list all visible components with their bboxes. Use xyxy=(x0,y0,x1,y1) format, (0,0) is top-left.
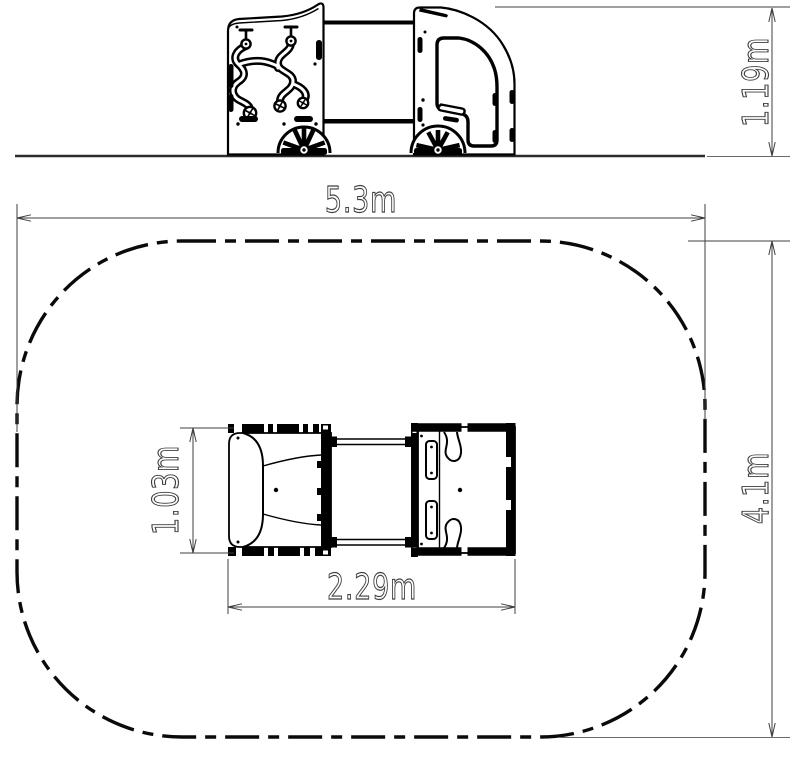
dim-safety-zone-length: 5.3m xyxy=(17,178,705,432)
dim-equipment-width: 1.03m xyxy=(144,428,234,553)
equipment-height-label: 1.19m xyxy=(734,37,777,127)
equipment-length-label: 2.29m xyxy=(327,565,417,608)
drawing-sheet: 5.3m 1.19m 4.1m 2.29m xyxy=(0,0,802,768)
safety-zone-width-label: 4.1m xyxy=(734,452,777,524)
dimensions: 5.3m 1.19m 4.1m 2.29m xyxy=(17,7,790,738)
connecting-rails-plan xyxy=(331,437,411,548)
activity-plan-front-wall xyxy=(506,423,516,556)
plan-view xyxy=(17,241,705,737)
cab-plan-front-wall xyxy=(321,424,331,556)
valve-wheel-icon xyxy=(298,98,308,108)
valve-wheel-icon xyxy=(274,100,285,111)
dim-safety-zone-width: 4.1m xyxy=(558,241,790,738)
technical-drawing-canvas: 5.3m 1.19m 4.1m 2.29m xyxy=(0,0,802,768)
safety-zone-length-label: 5.3m xyxy=(325,178,397,221)
activity-section-plan xyxy=(411,423,516,557)
safety-zone-boundary xyxy=(17,241,705,737)
equipment-width-label: 1.03m xyxy=(144,445,187,535)
dim-equipment-length: 2.29m xyxy=(228,559,515,614)
cab-panel-elevation xyxy=(411,8,515,156)
activity-panel-elevation xyxy=(228,3,330,155)
activity-plan-back-wall xyxy=(411,423,418,557)
elevation-view xyxy=(15,3,705,156)
cab-section-plan xyxy=(228,424,331,556)
dim-equipment-height: 1.19m xyxy=(495,7,790,157)
cab-plan-outline xyxy=(229,433,331,547)
connecting-rails-elevation xyxy=(323,21,417,124)
